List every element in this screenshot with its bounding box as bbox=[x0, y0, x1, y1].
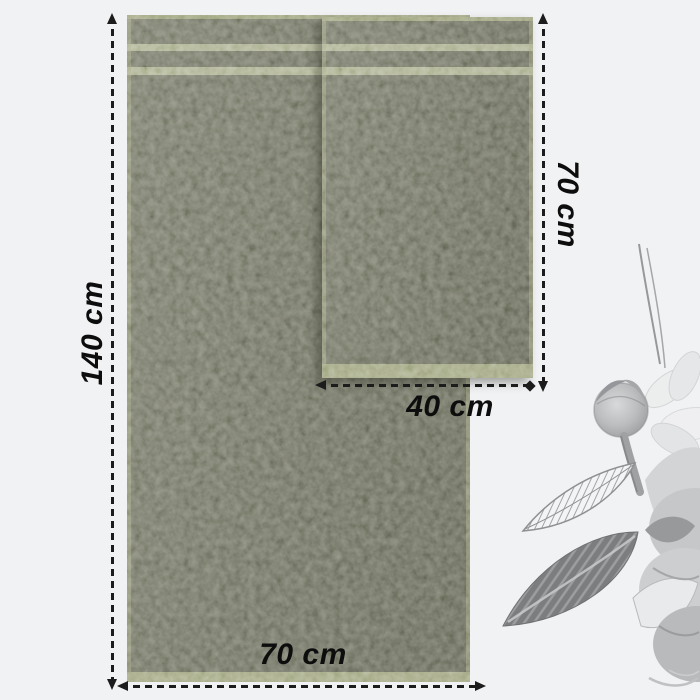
flower-bud bbox=[594, 380, 648, 437]
large-towel-width-label: 70 cm bbox=[259, 638, 347, 672]
large-towel-bottom-hem bbox=[127, 672, 470, 682]
lineart-leaf bbox=[523, 463, 635, 531]
arrow-down-icon bbox=[107, 679, 117, 690]
arrow-down-icon bbox=[538, 381, 548, 392]
large-towel-height-label: 140 cm bbox=[76, 281, 110, 386]
arrow-right-icon bbox=[475, 681, 486, 691]
arrow-up-icon bbox=[107, 13, 117, 24]
large-towel-left-edge bbox=[127, 15, 131, 682]
small-towel-width-label: 40 cm bbox=[406, 390, 494, 424]
arrow-left-icon bbox=[117, 681, 128, 691]
watercolor-flower-decoration bbox=[493, 228, 700, 700]
arrow-left-icon bbox=[315, 380, 326, 390]
small-towel-border-stripe bbox=[322, 44, 533, 51]
small-towel-width-dimension-line bbox=[319, 384, 530, 387]
small-towel-top-hem bbox=[322, 17, 533, 21]
small-towel-left-edge bbox=[322, 17, 326, 378]
small-towel-height-label: 70 cm bbox=[550, 160, 584, 248]
towel-dimension-diagram: 140 cm 70 cm 40 cm 70 cm bbox=[0, 0, 700, 700]
small-towel-height-dimension-line bbox=[542, 17, 545, 388]
dark-leaf bbox=[503, 532, 638, 626]
small-towel-border-stripe bbox=[322, 67, 533, 75]
large-towel-width-dimension-line bbox=[121, 685, 482, 688]
flower-petals bbox=[633, 447, 700, 682]
large-towel-height-dimension-line bbox=[111, 17, 114, 686]
arrow-up-icon bbox=[538, 13, 548, 24]
